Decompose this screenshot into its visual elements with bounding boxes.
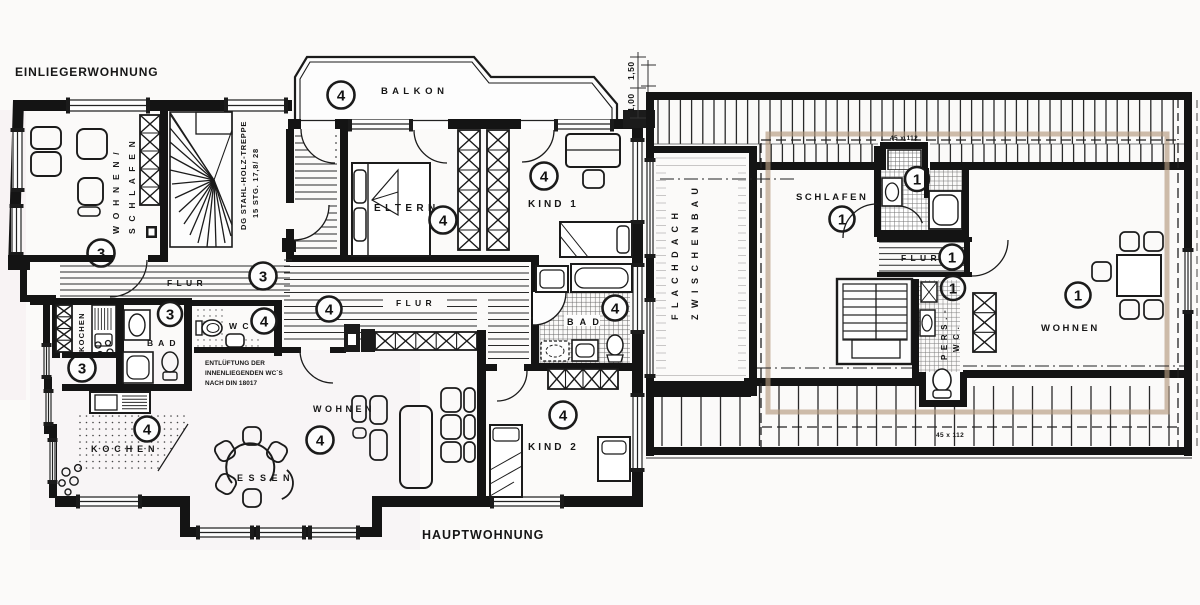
svg-text:W C: W C xyxy=(229,321,250,331)
svg-text:3: 3 xyxy=(166,306,174,323)
svg-text:4: 4 xyxy=(316,432,325,449)
svg-text:W O H N E N: W O H N E N xyxy=(313,404,372,414)
svg-text:1: 1 xyxy=(1074,287,1082,304)
svg-text:INNENLIEGENDEN WC´S: INNENLIEGENDEN WC´S xyxy=(205,370,284,377)
svg-text:WOHNEN: WOHNEN xyxy=(1041,323,1100,334)
svg-text:15 STG. 17,8/ 28: 15 STG. 17,8/ 28 xyxy=(251,148,260,218)
svg-text:3: 3 xyxy=(78,360,86,377)
svg-text:4: 4 xyxy=(559,407,568,424)
svg-text:ELTERN: ELTERN xyxy=(374,203,440,214)
svg-text:KIND 1: KIND 1 xyxy=(528,199,579,210)
svg-text:4: 4 xyxy=(540,168,549,185)
svg-text:45 x 112: 45 x 112 xyxy=(890,135,918,142)
svg-text:F L U R: F L U R xyxy=(167,278,204,288)
svg-text:F L U R: F L U R xyxy=(396,298,433,308)
svg-text:ENTLÜFTUNG DER: ENTLÜFTUNG DER xyxy=(205,358,265,367)
svg-text:4: 4 xyxy=(439,212,448,229)
svg-text:1: 1 xyxy=(913,171,921,188)
svg-text:B A D: B A D xyxy=(147,338,177,348)
svg-text:F L U R: F L U R xyxy=(901,253,938,263)
svg-text:4: 4 xyxy=(337,87,346,104)
svg-text:B A L K O N: B A L K O N xyxy=(381,86,445,97)
svg-text:HAUPTWOHNUNG: HAUPTWOHNUNG xyxy=(422,528,544,542)
svg-text:P E R S . -: P E R S . - xyxy=(940,309,949,360)
svg-text:45 x 112: 45 x 112 xyxy=(936,432,964,439)
svg-text:4: 4 xyxy=(260,313,269,330)
svg-text:1,00: 1,00 xyxy=(626,93,636,112)
svg-text:NACH DIN 18017: NACH DIN 18017 xyxy=(205,380,258,387)
svg-text:1,50: 1,50 xyxy=(626,61,636,80)
svg-text:DG STAHL-HOLZ-TREPPE: DG STAHL-HOLZ-TREPPE xyxy=(239,121,248,230)
svg-text:4: 4 xyxy=(325,301,334,318)
svg-text:EINLIEGERWOHNUNG: EINLIEGERWOHNUNG xyxy=(15,65,159,79)
svg-text:KOCHEN: KOCHEN xyxy=(77,312,86,352)
svg-text:4: 4 xyxy=(611,300,620,317)
svg-text:W C .: W C . xyxy=(952,326,961,352)
svg-text:4: 4 xyxy=(143,421,152,438)
svg-text:E S S E N: E S S E N xyxy=(237,473,291,483)
svg-text:1: 1 xyxy=(949,280,957,297)
svg-text:1: 1 xyxy=(948,249,956,266)
svg-text:Z W I S C H E N B A U: Z W I S C H E N B A U xyxy=(690,186,700,320)
svg-text:K O C H E N: K O C H E N xyxy=(91,444,156,454)
svg-text:3: 3 xyxy=(259,268,267,285)
svg-text:S C H L A F E N: S C H L A F E N xyxy=(127,139,137,234)
svg-text:KIND 2: KIND 2 xyxy=(528,442,579,453)
svg-text:W O H N E N /: W O H N E N / xyxy=(111,150,121,234)
svg-text:SCHLAFEN: SCHLAFEN xyxy=(796,192,869,203)
svg-text:F L A C H D A C H: F L A C H D A C H xyxy=(670,211,680,320)
svg-text:B A D: B A D xyxy=(567,317,601,327)
